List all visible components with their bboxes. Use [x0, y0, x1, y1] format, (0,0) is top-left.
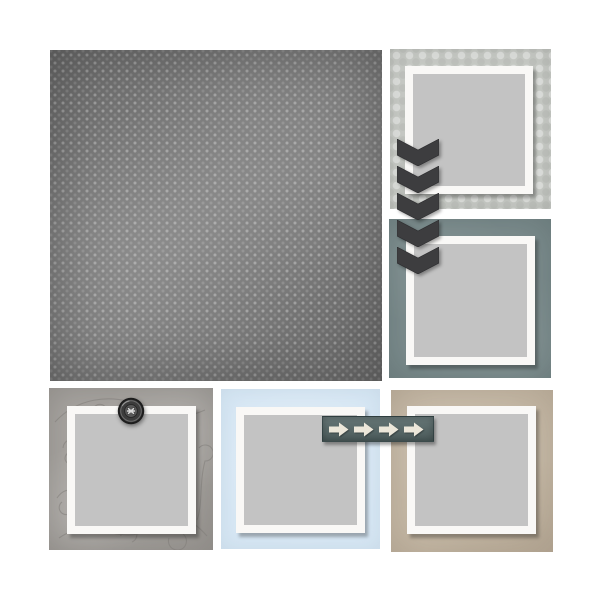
chevron-down-icon	[397, 166, 439, 193]
arrow-ribbon	[322, 416, 434, 442]
button-icon	[116, 396, 146, 426]
chevron-down-icon	[397, 220, 439, 247]
paper-charcoal-dot	[50, 50, 382, 381]
arrow-right-icon	[354, 422, 374, 437]
chevron-stack	[397, 139, 439, 275]
arrow-right-icon	[404, 422, 424, 437]
arrow-right-icon	[329, 422, 349, 437]
arrow-right-icon	[379, 422, 399, 437]
chevron-down-icon	[397, 193, 439, 220]
scrapbook-page	[0, 0, 600, 600]
chevron-down-icon	[397, 139, 439, 166]
photo-placeholder[interactable]	[75, 414, 188, 526]
chevron-down-icon	[397, 247, 439, 274]
